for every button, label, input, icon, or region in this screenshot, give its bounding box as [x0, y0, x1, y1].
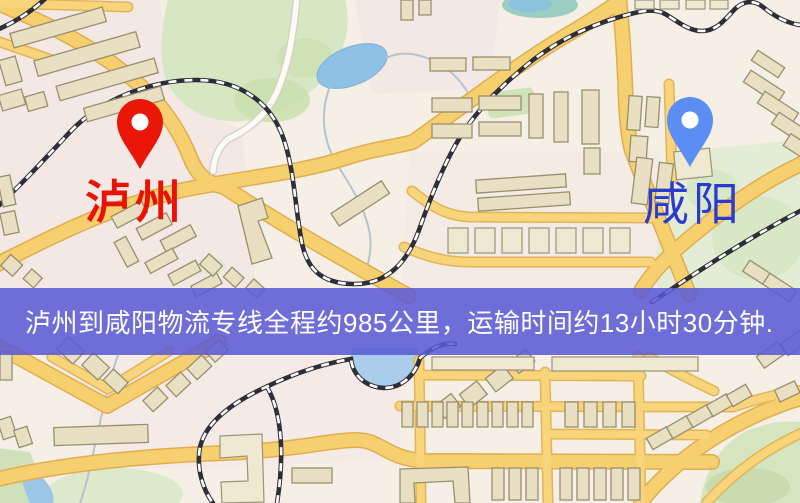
route-info-text: 泸州到咸阳物流专线全程约985公里，运输时间约13小时30分钟.	[25, 303, 773, 340]
destination-city-label: 咸阳	[643, 178, 743, 230]
map-screenshot: 泸州 咸阳 泸州到咸阳物流专线全程约985公里，运输时间约13小时30分钟.	[0, 0, 800, 503]
origin-city-label: 泸州	[85, 176, 185, 228]
route-info-banner: 泸州到咸阳物流专线全程约985公里，运输时间约13小时30分钟.	[0, 288, 800, 355]
map-canvas: 泸州 咸阳	[0, 0, 800, 503]
